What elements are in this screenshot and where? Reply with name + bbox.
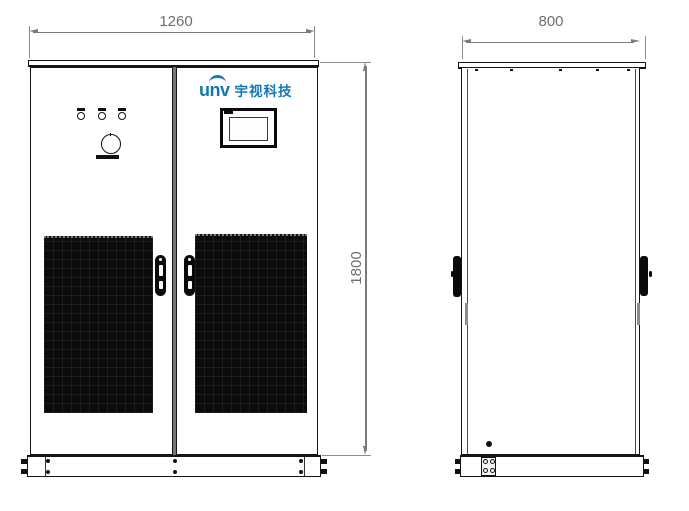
- side-depth-dim-label: 800: [523, 14, 579, 30]
- bolt-hole: [483, 459, 488, 464]
- brand-logo: unv 宇视科技: [199, 79, 293, 99]
- side-panel-edge-line: [635, 69, 636, 454]
- bolt-dot: [46, 459, 50, 463]
- front-top-cap: [28, 60, 319, 67]
- mounting-tab: [644, 469, 649, 474]
- handle-slot: [188, 281, 192, 289]
- indicator-label-bar: [77, 108, 85, 111]
- side-depth-dim-line: [466, 42, 634, 43]
- base-endcap-line: [304, 457, 305, 476]
- indicator-label-bar: [98, 108, 106, 111]
- side-panel-edge-line: [467, 69, 468, 454]
- bolt-dot: [46, 470, 50, 474]
- hinge-nub: [649, 271, 652, 277]
- mounting-tab: [321, 469, 327, 474]
- bolt-dot: [299, 459, 303, 463]
- hmi-corner-mark: [224, 111, 233, 115]
- hinge-shadow-segment: [465, 303, 468, 325]
- seam-tick: [559, 69, 562, 71]
- handle-lock-dot: [159, 258, 162, 261]
- logo-company-text: 宇视科技: [235, 84, 293, 99]
- hinge-shadow-segment: [637, 303, 640, 325]
- knob-notch: [110, 133, 112, 136]
- mounting-tab: [21, 459, 27, 464]
- mounting-tab: [455, 459, 460, 464]
- mounting-tab: [321, 459, 327, 464]
- handle-slot: [188, 265, 192, 276]
- extension-line: [645, 36, 646, 59]
- vent-grille-left: [44, 236, 153, 413]
- handle-slot: [159, 265, 163, 276]
- indicator-label-bar: [118, 108, 126, 111]
- dim-arrow-down-icon: [363, 446, 367, 455]
- hinge-nub: [451, 271, 454, 277]
- seam-tick: [596, 69, 599, 71]
- dim-arrow-up-icon: [363, 62, 367, 71]
- logo-brand-text: unv: [199, 81, 230, 99]
- dim-arrow-left-icon: [462, 39, 471, 43]
- bolt-hole: [483, 468, 488, 473]
- emergency-stop-knob-icon: [101, 134, 121, 154]
- dim-arrow-right-icon: [306, 29, 315, 33]
- vent-grille-right: [195, 234, 307, 413]
- mounting-tab: [644, 459, 649, 464]
- knob-label-bar: [96, 155, 119, 159]
- bolt-dot: [173, 470, 177, 474]
- mounting-tab: [21, 469, 27, 474]
- indicator-light-icon: [98, 112, 106, 120]
- door-seam: [172, 67, 177, 455]
- dim-arrow-right-icon: [631, 39, 640, 43]
- cabinet-dimension-drawing: 1260 unv 宇视科技: [0, 0, 689, 511]
- handle-lock-dot: [188, 258, 191, 261]
- bolt-hole: [490, 459, 495, 464]
- bolt-dot: [173, 459, 177, 463]
- hinge-right: [640, 256, 648, 296]
- height-dim-line: [365, 66, 366, 451]
- hinge-left: [453, 256, 461, 297]
- seam-tick: [475, 69, 478, 71]
- ground-bolt-dot: [486, 441, 492, 447]
- indicator-light-icon: [118, 112, 126, 120]
- side-cabinet-body: [461, 67, 640, 455]
- hmi-screen: [229, 117, 268, 141]
- mounting-tab: [455, 469, 460, 474]
- bolt-hole: [490, 468, 495, 473]
- seam-tick: [627, 69, 630, 71]
- dim-arrow-left-icon: [29, 29, 38, 33]
- seam-tick: [510, 69, 513, 71]
- front-width-dim-line: [33, 32, 311, 33]
- front-width-dim-label: 1260: [148, 14, 204, 30]
- indicator-light-icon: [77, 112, 85, 120]
- handle-slot: [159, 281, 163, 289]
- height-dim-label: 1800: [349, 238, 365, 298]
- bolt-dot: [299, 470, 303, 474]
